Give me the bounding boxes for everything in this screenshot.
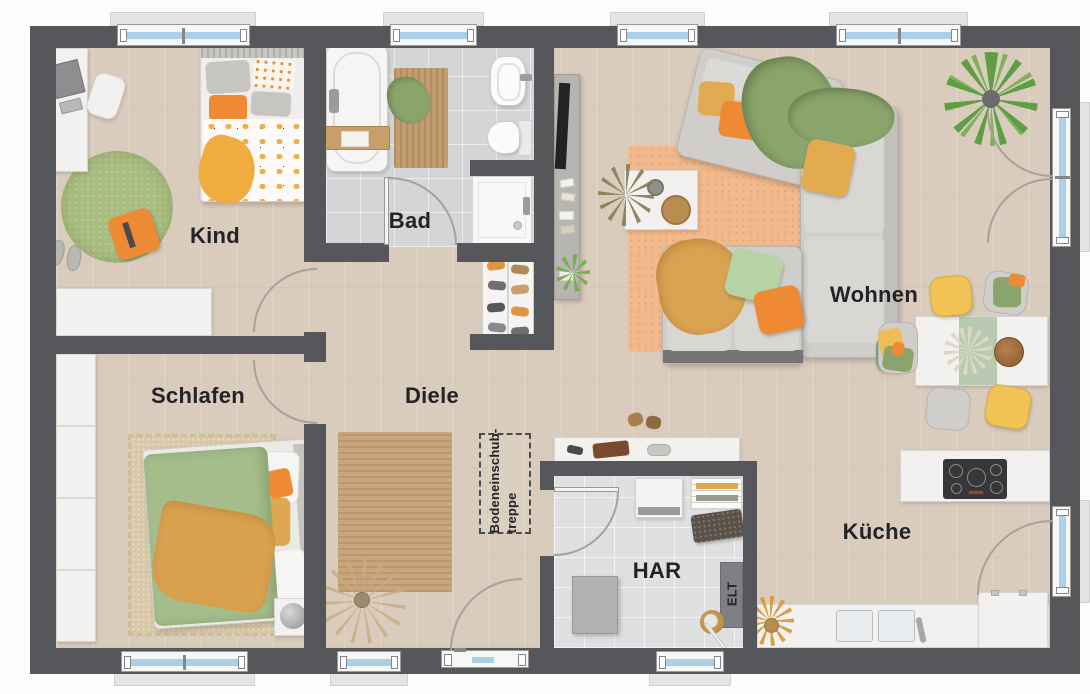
window-cap (620, 29, 627, 42)
window-schlafen (121, 651, 248, 672)
tray-large (661, 195, 691, 225)
sink-basin-right (878, 610, 915, 642)
room-label-diele: Diele (405, 385, 459, 407)
kid-bed (200, 44, 308, 202)
toilet-tank (518, 120, 532, 156)
bathtub (326, 44, 388, 172)
toilet-bowl (487, 121, 520, 154)
window-glass (663, 659, 719, 666)
window-cap (1056, 509, 1069, 516)
kitchen-island (900, 450, 1050, 502)
burner (951, 483, 962, 494)
kid-pillow-dotted (252, 57, 296, 91)
cooktop-control (969, 491, 983, 494)
attic-stairs-line2: treppe (504, 429, 521, 534)
dining-chair-gray3 (924, 386, 971, 432)
kid-pillow-gray2 (250, 91, 291, 117)
window-cap (238, 656, 245, 669)
kitchen-door-glass (1059, 513, 1066, 592)
bathroom-sink (490, 56, 526, 106)
window-cap (714, 656, 721, 669)
wall-schlafen-diele (304, 424, 326, 648)
decor-tray (647, 444, 671, 456)
window-sill (114, 672, 255, 686)
door-hinge (518, 654, 526, 666)
door-hinge (444, 654, 452, 666)
palm-pot (982, 90, 1000, 108)
kid-pillow-gray (205, 60, 251, 95)
entrance-door (441, 650, 529, 668)
kid-sideboard (56, 288, 212, 336)
label-attic-stairs: Bodeneinschub- treppe (487, 429, 521, 534)
shelf-book (559, 211, 574, 220)
window-sill (330, 672, 408, 686)
room-label-bad: Bad (389, 210, 431, 232)
shower-drain (513, 221, 522, 230)
fern-plant (556, 254, 590, 292)
window-cap (120, 29, 127, 42)
flower-bouquet (944, 327, 992, 375)
window-mullion (898, 28, 901, 44)
kitchen-door (1052, 506, 1071, 597)
wall-har-top (540, 461, 757, 476)
kitchen-faucet (915, 617, 926, 644)
floor-plan: Kind Bad Wohnen Schlafen Diele HAR Küche… (0, 0, 1090, 694)
hall-sideboard (554, 437, 740, 462)
window-har (656, 651, 724, 672)
shelf-book (559, 178, 574, 188)
window-diele (337, 651, 401, 672)
clutch-bag (592, 440, 629, 459)
wall-bad-wohnen (534, 48, 554, 350)
room-label-kind: Kind (190, 225, 240, 247)
room-label-schlafen: Schlafen (151, 385, 245, 407)
window-cap (951, 29, 958, 42)
window-sill (649, 672, 731, 686)
sink-basin-left (836, 610, 873, 642)
wall-kind-bad (304, 48, 326, 258)
washer-front (638, 507, 680, 515)
room-label-kueche: Küche (843, 521, 912, 543)
window-cap (659, 656, 666, 669)
window-glass (397, 32, 472, 39)
label-elt: ELT (726, 582, 739, 606)
window-cap (124, 656, 131, 669)
chair-strap-orange (1008, 273, 1026, 287)
table-plant (598, 164, 654, 226)
burner (967, 468, 986, 487)
window-cap (240, 29, 247, 42)
sphere-lamp (280, 603, 306, 629)
shoes (511, 284, 530, 295)
window-cap (1056, 111, 1069, 118)
shoes (488, 322, 507, 333)
laundry-item (696, 495, 738, 501)
shoe-shelf (482, 254, 534, 342)
wall-har-left-a (540, 476, 554, 490)
washing-machine (635, 478, 683, 518)
window-cap (391, 656, 398, 669)
tv-screen (555, 83, 570, 169)
entrance-door-glass (472, 657, 494, 663)
window-wohnen-a (617, 24, 698, 46)
window-glass (624, 32, 693, 39)
shower-fixture (523, 197, 530, 215)
dining-chair-gray (981, 269, 1030, 317)
window-mullion (183, 655, 186, 670)
pampas-vase (354, 592, 370, 608)
shoes (487, 302, 506, 312)
bath-caddy (322, 126, 390, 150)
burner (990, 481, 1003, 494)
flower-vase (764, 618, 779, 633)
attic-stairs-line1: Bodeneinschub- (487, 429, 504, 534)
wall-har-right (743, 461, 757, 648)
kid-pillow-orange (209, 95, 247, 121)
caddy-towel (341, 131, 369, 147)
window-cap (839, 29, 846, 42)
cooktop (943, 459, 1007, 499)
shower-tray (472, 176, 532, 244)
sink-faucet (520, 74, 532, 81)
terrace-door (1052, 108, 1071, 247)
wall-bad-bottom-left (304, 243, 389, 262)
wall-kind-schlafen (56, 336, 326, 354)
window-mullion (182, 28, 185, 44)
window-bad (390, 24, 477, 46)
wall-shower-sep (470, 160, 534, 176)
wardrobe (56, 352, 96, 642)
shoes (511, 264, 530, 275)
shelf-book (560, 224, 576, 235)
decor-bowl (994, 337, 1024, 367)
sink-basin (497, 63, 521, 101)
shoes (511, 306, 530, 317)
shelf-book (561, 192, 576, 202)
drying-rack (690, 476, 743, 510)
wall-outer-left (30, 26, 56, 674)
wall-har-left-b (540, 556, 554, 648)
shoes (488, 280, 507, 291)
burner (990, 464, 1002, 476)
window-wohnen-b (836, 24, 961, 46)
window-cap (340, 656, 347, 669)
window-cap (467, 29, 474, 42)
room-label-har: HAR (633, 560, 682, 582)
pillow-orange2 (752, 284, 806, 337)
dining-chair-yellow2 (983, 382, 1034, 431)
window-cap (393, 29, 400, 42)
sofa-base (663, 350, 803, 363)
laundry-item (696, 483, 738, 489)
door-mullion (1055, 176, 1070, 179)
kitchen-tall-cabinet (978, 592, 1048, 648)
window-glass (344, 659, 396, 666)
dining-table (915, 316, 1048, 386)
bath-faucet (329, 89, 339, 113)
dining-chair-yellow (928, 274, 974, 318)
keys (566, 444, 583, 455)
wall-niche-bottom (470, 334, 554, 350)
window-cap (1056, 237, 1069, 244)
room-label-wohnen: Wohnen (830, 284, 918, 306)
window-cap (688, 29, 695, 42)
freezer-box (572, 576, 618, 634)
window-kind (117, 24, 250, 46)
burner (949, 464, 963, 478)
window-cap (1056, 587, 1069, 594)
